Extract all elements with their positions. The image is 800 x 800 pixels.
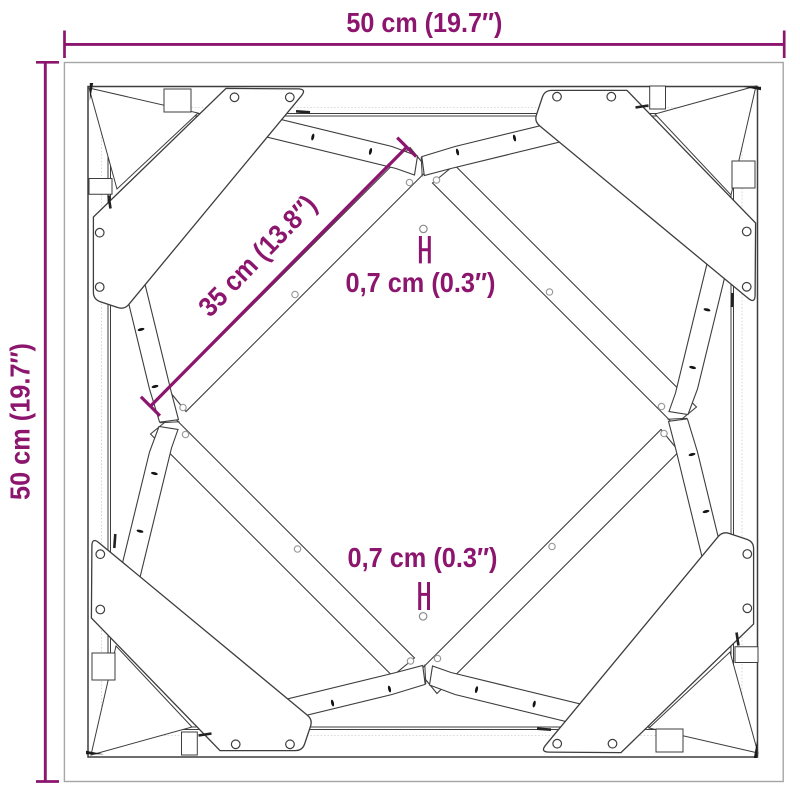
svg-text:50 cm (19.7″): 50 cm (19.7″): [346, 7, 502, 38]
svg-text:0,7 cm (0.3″): 0,7 cm (0.3″): [348, 542, 498, 573]
svg-text:50 cm (19.7″): 50 cm (19.7″): [5, 343, 36, 500]
svg-text:0,7 cm (0.3″): 0,7 cm (0.3″): [346, 267, 496, 298]
